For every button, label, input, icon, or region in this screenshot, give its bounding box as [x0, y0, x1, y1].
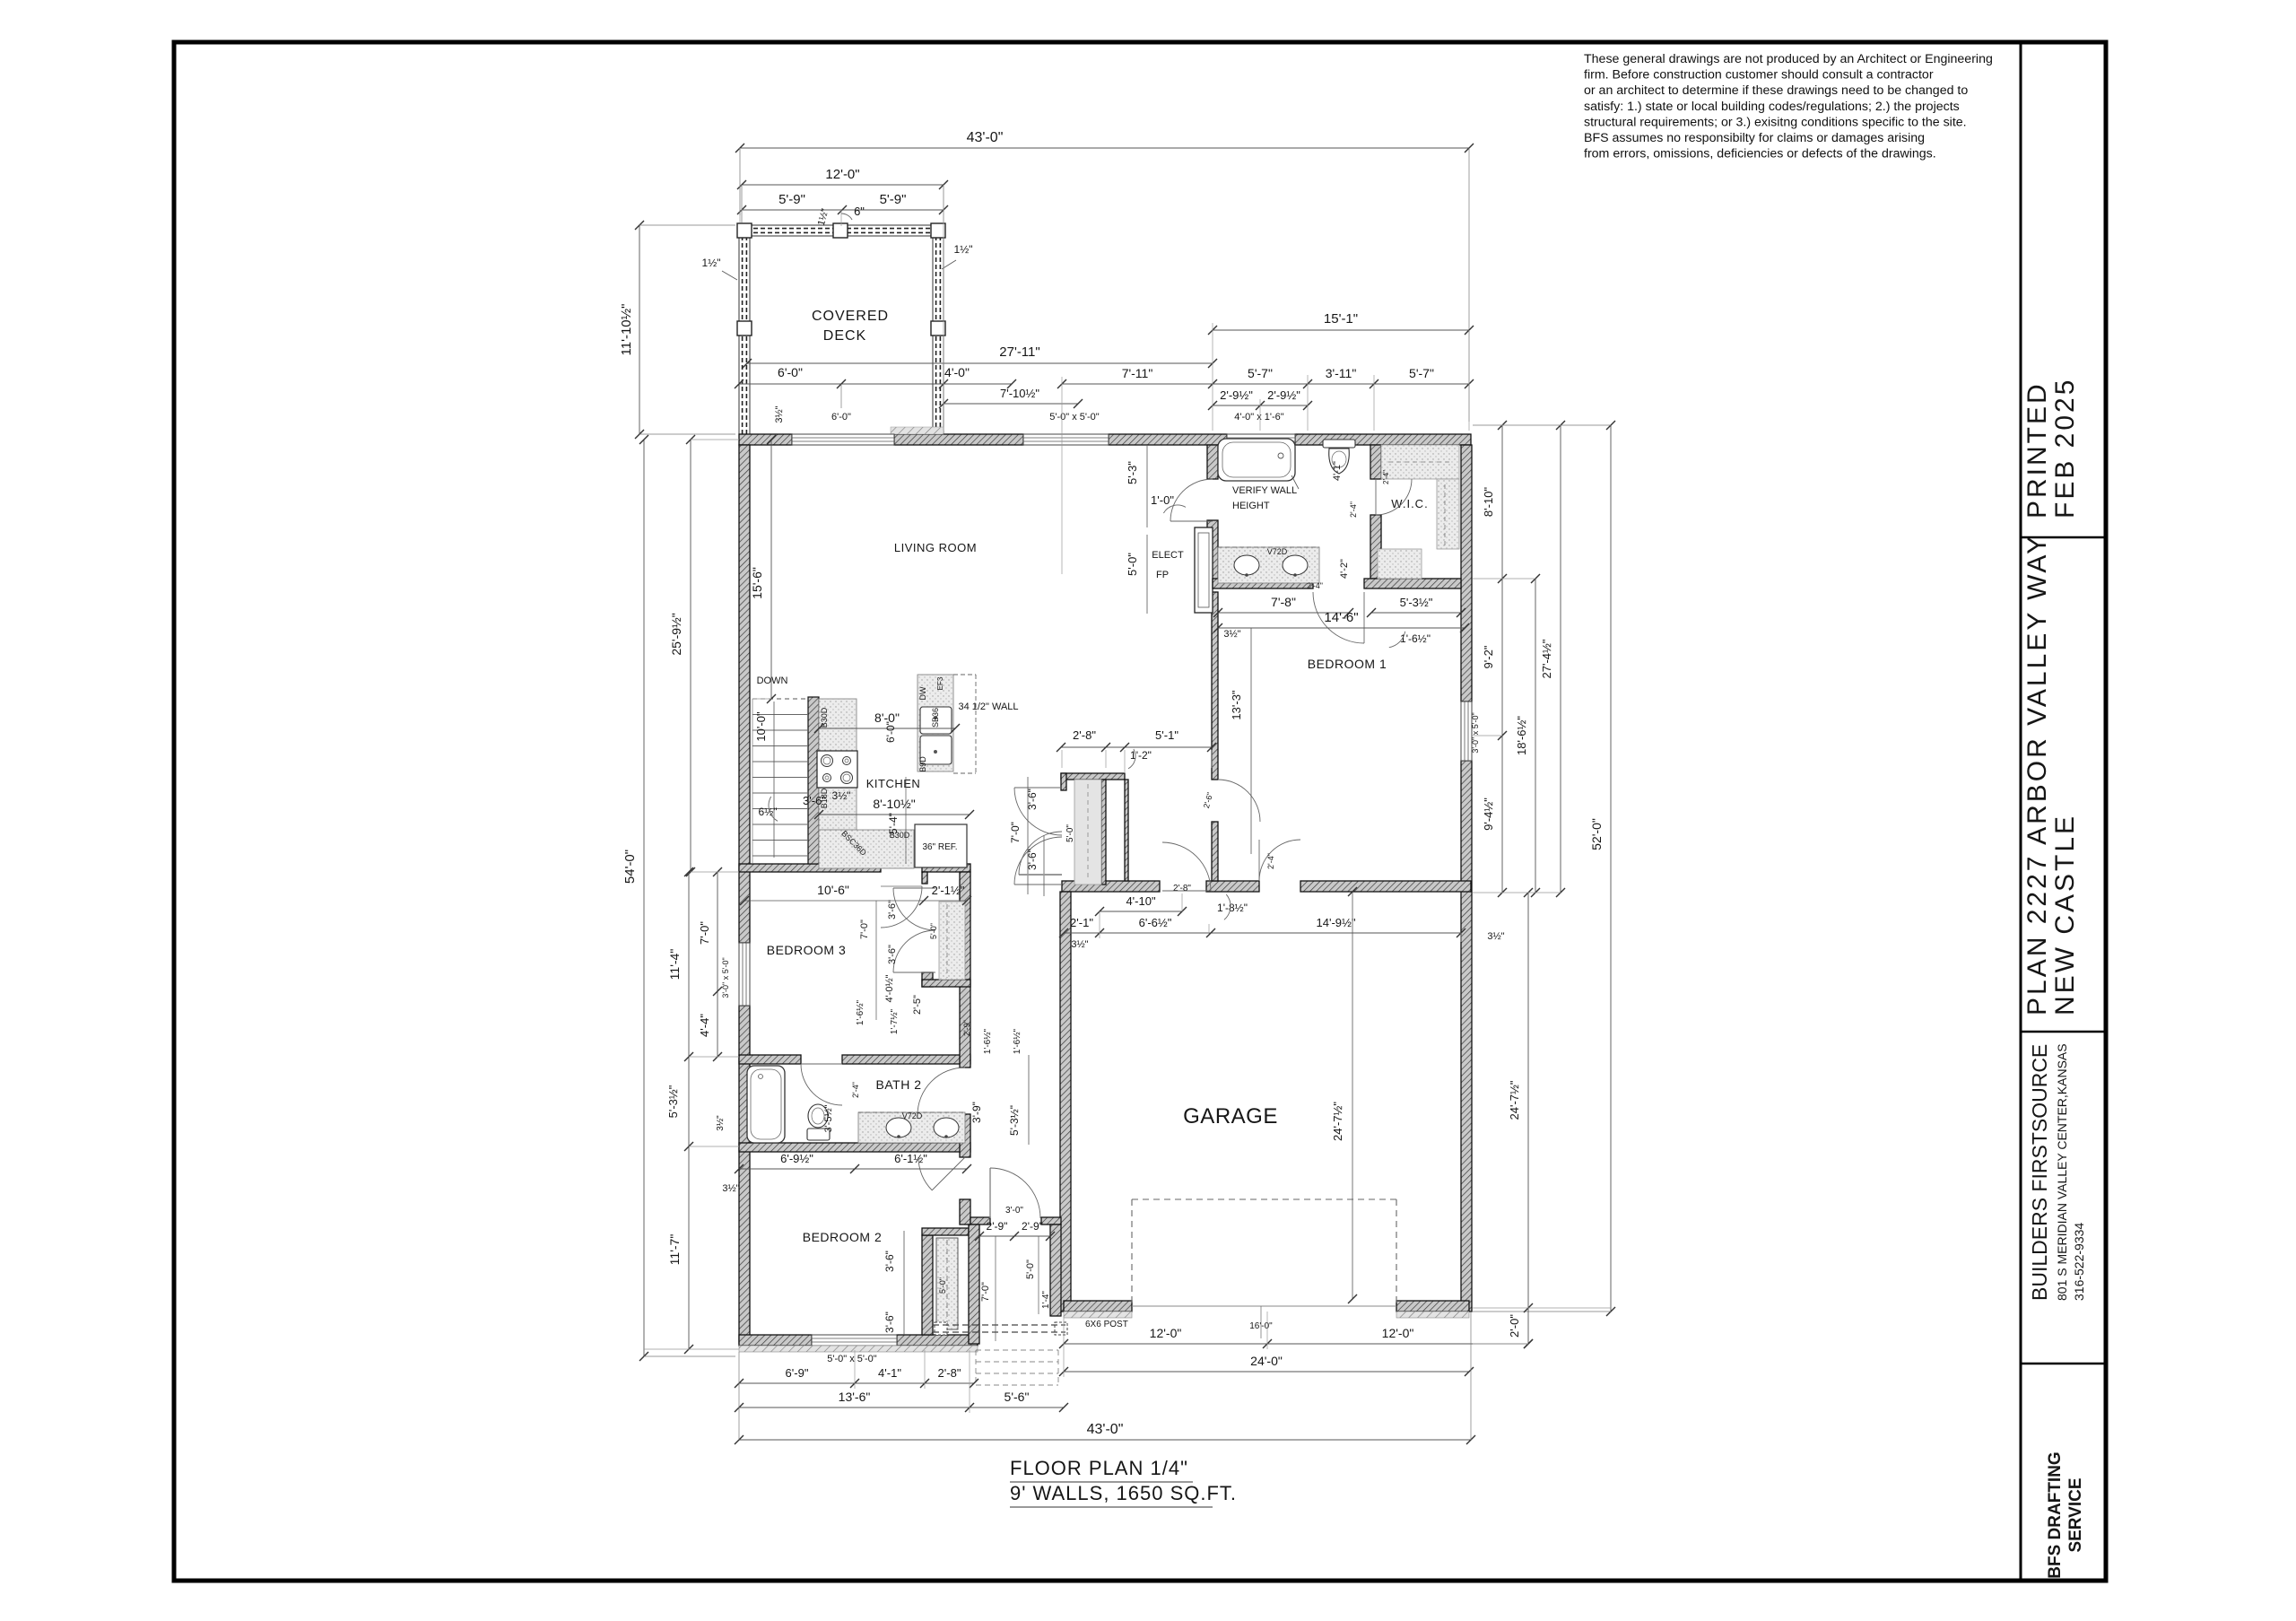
svg-text:6X6 POST: 6X6 POST [1085, 1320, 1128, 1329]
svg-text:6'-9½": 6'-9½" [780, 1152, 813, 1165]
svg-text:7'-11": 7'-11" [1122, 366, 1153, 380]
svg-text:FLOOR PLAN 1/4": FLOOR PLAN 1/4" [1010, 1457, 1188, 1479]
svg-text:4'-1": 4'-1" [878, 1366, 901, 1380]
svg-text:3'-0" x 5'-0": 3'-0" x 5'-0" [1471, 712, 1480, 753]
svg-text:6½": 6½" [759, 806, 778, 818]
svg-text:6'-1½": 6'-1½" [894, 1152, 927, 1165]
svg-text:43'-0": 43'-0" [1087, 1422, 1124, 1437]
svg-text:KITCHEN: KITCHEN [866, 777, 921, 790]
svg-text:5'-4": 5'-4" [887, 813, 900, 834]
svg-text:LIVING ROOM: LIVING ROOM [894, 541, 977, 554]
svg-text:10'-0": 10'-0" [754, 711, 768, 742]
svg-text:2'-4": 2'-4" [1266, 853, 1275, 869]
svg-text:11'-4": 11'-4" [667, 949, 682, 980]
svg-text:24'-7½": 24'-7½" [1508, 1080, 1521, 1120]
svg-text:B9D: B9D [918, 756, 927, 772]
svg-text:1'-0": 1'-0" [1151, 493, 1174, 507]
svg-text:2'-8": 2'-8" [1073, 728, 1096, 742]
svg-text:2'-5": 2'-5" [912, 995, 923, 1015]
svg-text:27'-11": 27'-11" [999, 344, 1039, 360]
svg-text:2'-9": 2'-9" [1022, 1220, 1043, 1233]
svg-text:BATH 2: BATH 2 [876, 1077, 922, 1092]
svg-text:3'-6": 3'-6" [803, 794, 826, 807]
svg-text:firm. Before construction cust: firm. Before construction customer shoul… [1584, 68, 1934, 83]
svg-text:36" REF.: 36" REF. [922, 842, 957, 852]
svg-text:34 1/2" WALL: 34 1/2" WALL [958, 702, 1018, 712]
svg-text:4'-4": 4'-4" [698, 1014, 711, 1037]
svg-text:5'-1": 5'-1" [1155, 728, 1178, 742]
svg-text:54'-0": 54'-0" [622, 850, 638, 884]
svg-text:4'-1": 4'-1" [1332, 461, 1343, 481]
svg-text:from errors, omissions, defici: from errors, omissions, deficiencies or … [1584, 147, 1936, 161]
svg-text:2'-8": 2'-8" [938, 1366, 961, 1380]
svg-text:3'-6": 3'-6" [887, 945, 898, 964]
svg-text:3'-0": 3'-0" [1005, 1206, 1023, 1216]
svg-text:5'-7": 5'-7" [1248, 366, 1273, 380]
svg-text:5'-9": 5'-9" [778, 192, 805, 207]
svg-text:5'-6": 5'-6" [1004, 1390, 1030, 1404]
svg-text:7'-0": 7'-0" [698, 921, 711, 945]
svg-text:1½": 1½" [702, 257, 721, 269]
svg-text:BFS DRAFTING: BFS DRAFTING [2046, 1451, 2065, 1578]
svg-text:15'-1": 15'-1" [1324, 311, 1358, 327]
svg-text:VERIFY WALL: VERIFY WALL [1232, 485, 1297, 496]
svg-text:14'-9½": 14'-9½" [1317, 916, 1356, 929]
svg-text:BEDROOM 3: BEDROOM 3 [767, 943, 847, 957]
svg-text:3½": 3½" [1487, 931, 1504, 942]
svg-text:7'-0": 7'-0" [980, 1282, 991, 1302]
svg-text:5'-9": 5'-9" [880, 192, 907, 207]
svg-text:2'-8": 2'-8" [1173, 884, 1191, 893]
svg-text:1'-6½": 1'-6½" [1013, 1028, 1022, 1054]
svg-text:5'-0" x 5'-0": 5'-0" x 5'-0" [1049, 412, 1100, 423]
svg-text:24'-0": 24'-0" [1250, 1354, 1283, 1368]
svg-text:52'-0": 52'-0" [1589, 818, 1604, 850]
svg-text:2'-1½": 2'-1½" [932, 884, 965, 897]
svg-text:3'-6": 3'-6" [887, 900, 898, 919]
svg-text:6'-9": 6'-9" [786, 1366, 809, 1380]
svg-text:24'-7½": 24'-7½" [1331, 1102, 1344, 1141]
svg-text:3½": 3½" [1071, 939, 1088, 950]
svg-text:5'-0": 5'-0" [1025, 1259, 1036, 1279]
svg-text:4'-2": 4'-2" [1339, 559, 1350, 579]
svg-text:DECK: DECK [823, 328, 866, 344]
svg-text:9'-2": 9'-2" [1482, 645, 1495, 668]
svg-text:11'-10½": 11'-10½" [619, 304, 634, 356]
svg-text:11'-7": 11'-7" [667, 1234, 682, 1266]
svg-text:PRINTED: PRINTED [2022, 381, 2052, 519]
svg-text:5'-3½": 5'-3½" [1008, 1105, 1021, 1136]
svg-text:6'-0": 6'-0" [884, 721, 897, 743]
svg-text:13'-3": 13'-3" [1230, 690, 1243, 720]
svg-text:7'-0": 7'-0" [1009, 822, 1022, 843]
svg-text:2'-1": 2'-1" [1070, 916, 1093, 929]
svg-text:5'-7": 5'-7" [1409, 366, 1434, 380]
svg-text:1'-6½": 1'-6½" [983, 1028, 993, 1054]
svg-text:1'-4": 1'-4" [1041, 1291, 1051, 1309]
svg-text:14'-6": 14'-6" [1324, 610, 1358, 625]
svg-text:5'-3½": 5'-3½" [1400, 596, 1433, 609]
svg-text:1½": 1½" [954, 243, 973, 256]
svg-text:BEDROOM 1: BEDROOM 1 [1308, 657, 1387, 671]
svg-text:3'-6": 3'-6" [883, 1312, 896, 1333]
svg-text:EF3: EF3 [936, 676, 944, 690]
svg-text:satisfy: 1.) state or local bu: satisfy: 1.) state or local building cod… [1584, 100, 1960, 114]
svg-text:3'-6": 3'-6" [883, 1251, 896, 1272]
svg-text:2'-9": 2'-9" [987, 1220, 1008, 1233]
svg-text:2'-9½": 2'-9½" [1220, 388, 1253, 402]
svg-text:5'-0": 5'-0" [929, 923, 938, 939]
svg-text:5'-0" x 5'-0": 5'-0" x 5'-0" [827, 1354, 877, 1364]
svg-text:3½": 3½" [716, 1115, 726, 1131]
svg-text:6'-0": 6'-0" [831, 412, 851, 423]
svg-text:12'-0": 12'-0" [825, 167, 859, 182]
svg-text:316-522-9334: 316-522-9334 [2072, 1223, 2086, 1301]
svg-text:DW: DW [918, 686, 927, 700]
svg-text:BFS assumes no responsibilty f: BFS assumes no responsibilty for claims … [1584, 131, 1925, 145]
svg-text:1'-6½": 1'-6½" [856, 999, 865, 1025]
svg-text:FEB 2025: FEB 2025 [2050, 378, 2080, 519]
svg-text:DOWN: DOWN [757, 675, 788, 686]
svg-text:6'-0": 6'-0" [778, 365, 803, 379]
svg-text:or an architect to determine i: or an architect to determine if these dr… [1584, 83, 1968, 98]
svg-text:5'-3½": 5'-3½" [666, 1085, 680, 1118]
svg-text:3½": 3½" [774, 405, 785, 423]
svg-text:COVERED: COVERED [812, 309, 889, 324]
svg-text:BEDROOM 2: BEDROOM 2 [803, 1230, 883, 1244]
svg-text:These general drawings are not: These general drawings are not produced … [1584, 52, 1993, 66]
svg-text:801 S MERIDIAN VALLEY CENTER,K: 801 S MERIDIAN VALLEY CENTER,KANSAS [2055, 1043, 2069, 1301]
svg-text:3'-5½": 3'-5½" [823, 1104, 834, 1132]
svg-text:4'-0": 4'-0" [944, 365, 970, 379]
svg-text:5'-0": 5'-0" [938, 1277, 947, 1294]
svg-text:4'-10": 4'-10" [1126, 894, 1156, 908]
svg-text:12'-0": 12'-0" [1150, 1326, 1182, 1340]
svg-text:3'-11": 3'-11" [1326, 366, 1357, 380]
svg-text:25'-9½": 25'-9½" [669, 613, 683, 655]
svg-text:2'-9": 2'-9" [962, 1020, 971, 1036]
svg-text:V72D: V72D [902, 1111, 923, 1120]
svg-text:4'-0" x 1'-6": 4'-0" x 1'-6" [1234, 412, 1284, 423]
svg-text:1'-2": 1'-2" [1130, 749, 1152, 762]
svg-text:structural requirements; or 3.: structural requirements; or 3.) exisitng… [1584, 115, 1967, 129]
svg-text:10'-6": 10'-6" [817, 883, 849, 897]
svg-text:V72D: V72D [1267, 547, 1288, 556]
svg-text:PLAN 2227 ARBOR VALLEY WAY: PLAN 2227 ARBOR VALLEY WAY [2022, 534, 2052, 1015]
svg-text:9'-4½": 9'-4½" [1482, 797, 1495, 831]
svg-text:3½": 3½" [1223, 629, 1240, 640]
svg-text:2'-4": 2'-4" [1382, 470, 1390, 484]
svg-text:3½": 3½" [832, 789, 851, 802]
svg-text:2'-4": 2'-4" [1307, 581, 1323, 590]
svg-text:5'-0": 5'-0" [1126, 553, 1139, 576]
svg-text:6": 6" [854, 205, 865, 218]
svg-text:15'-6": 15'-6" [750, 567, 764, 599]
svg-text:GARAGE: GARAGE [1183, 1104, 1278, 1129]
svg-text:2'-9½": 2'-9½" [1267, 388, 1300, 402]
svg-text:1'-8½": 1'-8½" [1217, 902, 1248, 914]
svg-text:9' WALLS, 1650 SQ.FT.: 9' WALLS, 1650 SQ.FT. [1010, 1482, 1237, 1504]
svg-text:8'-10½": 8'-10½" [873, 797, 915, 811]
svg-text:12'-0": 12'-0" [1382, 1326, 1414, 1340]
svg-text:2'-0": 2'-0" [1508, 1314, 1521, 1338]
svg-text:43'-0": 43'-0" [967, 130, 1004, 145]
svg-text:7'-8": 7'-8" [1271, 595, 1296, 609]
svg-text:2'-4": 2'-4" [851, 1082, 860, 1098]
svg-text:HEIGHT: HEIGHT [1232, 501, 1270, 511]
svg-text:13'-6": 13'-6" [839, 1390, 871, 1404]
svg-text:18'-6½": 18'-6½" [1515, 716, 1528, 755]
svg-text:3'-9": 3'-9" [970, 1102, 983, 1123]
svg-text:27'-4½": 27'-4½" [1540, 639, 1553, 678]
svg-text:NEW CASTLE: NEW CASTLE [2050, 814, 2080, 1015]
svg-text:FP: FP [1156, 570, 1169, 580]
svg-text:7'-10½": 7'-10½" [1000, 387, 1039, 400]
svg-text:3'-0" x 5'-0": 3'-0" x 5'-0" [721, 957, 730, 998]
svg-text:1'-7½": 1'-7½" [890, 1008, 900, 1034]
svg-text:ELECT: ELECT [1152, 550, 1184, 561]
svg-text:SERVICE: SERVICE [2066, 1477, 2085, 1552]
svg-text:5'-0": 5'-0" [1065, 824, 1075, 842]
svg-text:4'-0½": 4'-0½" [884, 974, 895, 1002]
svg-text:5'-3": 5'-3" [1126, 461, 1139, 484]
svg-text:3½": 3½" [722, 1183, 739, 1194]
svg-text:BUILDERS FIRSTSOURCE: BUILDERS FIRSTSOURCE [2028, 1044, 2051, 1301]
svg-text:B30D: B30D [820, 707, 829, 728]
svg-text:8'-10": 8'-10" [1482, 487, 1495, 518]
svg-text:SB36: SB36 [931, 708, 940, 728]
svg-text:2'-4": 2'-4" [1349, 501, 1358, 518]
svg-text:7'-0": 7'-0" [859, 919, 870, 939]
svg-text:6'-6½": 6'-6½" [1139, 916, 1172, 929]
